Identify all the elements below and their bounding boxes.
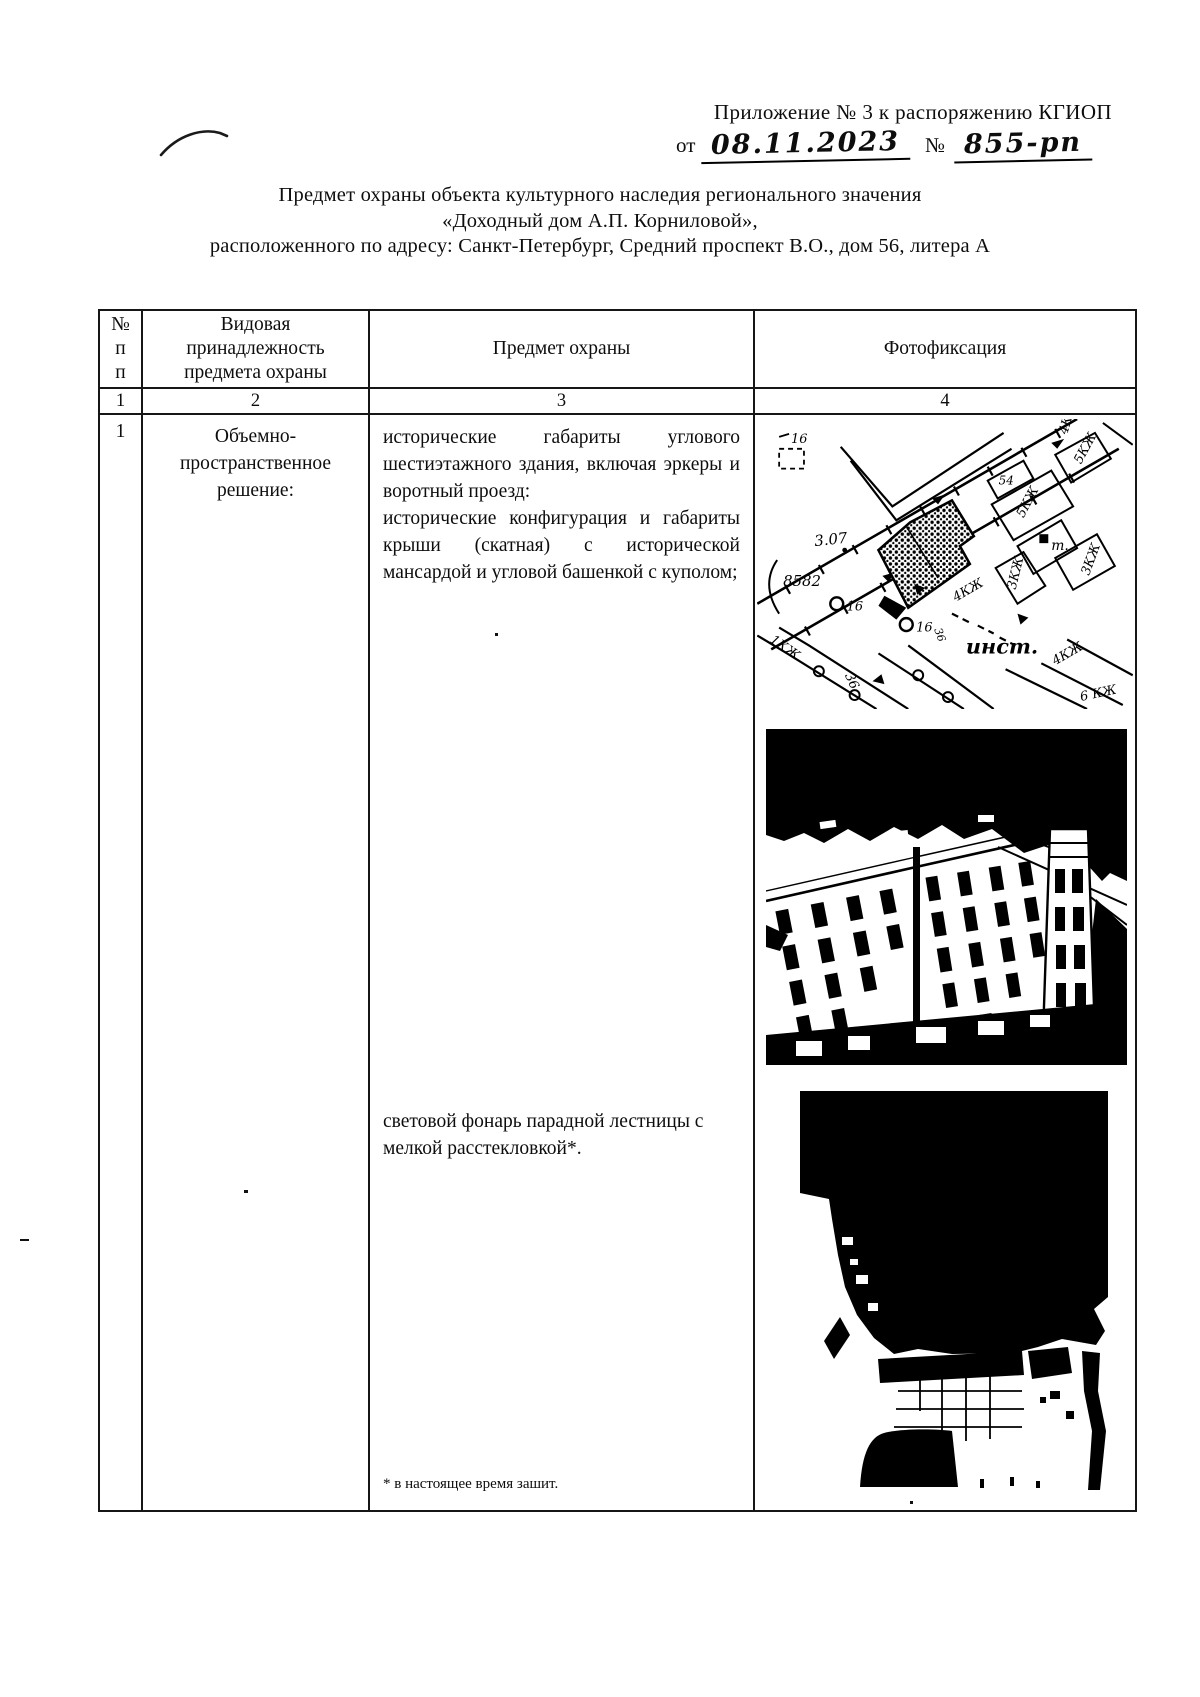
pen-mark: [158, 124, 234, 160]
row-category: Объемно-пространственное решение:: [143, 415, 370, 1510]
subject-item-1: исторические габариты углового шестиэтаж…: [383, 424, 740, 505]
skylight-photo: [800, 1091, 1108, 1490]
scan-speck: [910, 1501, 913, 1504]
number-sign: №: [925, 133, 945, 157]
header-cell-subject: Предмет охраны: [370, 311, 755, 389]
document-page: { "document": { "annex": "Приложение № 3…: [0, 0, 1200, 1697]
building-photo: [766, 729, 1127, 1065]
table-row: 1 Объемно-пространственное решение: исто…: [100, 415, 1135, 1510]
column-number-1: 1: [100, 389, 143, 415]
scan-speck: [495, 633, 498, 636]
document-title: Предмет охраны объекта культурного насле…: [0, 183, 1200, 260]
row-subject-text: исторические габариты углового шестиэтаж…: [370, 415, 755, 1510]
header-cell-category: Видовая принадлежность предмета охраны: [143, 311, 370, 389]
row-number: 1: [100, 415, 143, 1510]
svg-text:54: 54: [999, 474, 1014, 488]
site-plan-map: 16 8582 3.07 54 5КЖ 5КЖ т.: [757, 419, 1133, 709]
scan-speck: [20, 1239, 29, 1241]
row-photos: 16 8582 3.07 54 5КЖ 5КЖ т.: [755, 415, 1135, 1510]
column-number-2: 2: [143, 389, 370, 415]
title-line-1: Предмет охраны объекта культурного насле…: [0, 183, 1200, 209]
title-line-2: «Доходный дом А.П. Корниловой»,: [0, 209, 1200, 235]
title-line-3: расположенного по адресу: Санкт-Петербур…: [0, 234, 1200, 260]
column-number-3: 3: [370, 389, 755, 415]
header-cell-number: № п п: [100, 311, 143, 389]
subject-item-3: световой фонарь парадной лестницы с мелк…: [383, 1108, 740, 1162]
from-label: от: [676, 133, 695, 157]
order-date-handwritten: 08.11.2023: [700, 128, 910, 164]
order-number-handwritten: 855-рп: [954, 129, 1093, 164]
svg-text:8582: 8582: [783, 572, 821, 590]
svg-text:16: 16: [847, 600, 863, 615]
footnote: * в настоящее время зашит.: [383, 1475, 558, 1494]
column-number-4: 4: [755, 389, 1135, 415]
column-number-row: 1 2 3 4: [100, 389, 1135, 415]
svg-text:3.07: 3.07: [813, 529, 848, 550]
svg-text:16: 16: [916, 621, 932, 636]
svg-text:16: 16: [791, 432, 807, 447]
svg-text:инст.: инст.: [966, 633, 1038, 658]
scan-speck: [244, 1190, 248, 1193]
table-header-row: № п п Видовая принадлежность предмета ох…: [100, 311, 1135, 389]
annex-reference: Приложение № 3 к распоряжению КГИОП: [714, 100, 1112, 125]
protection-subject-table: № п п Видовая принадлежность предмета ох…: [98, 309, 1137, 1512]
order-date-number: от 08.11.2023 № 855-рп: [676, 130, 1116, 162]
subject-item-2: исторические конфигурация и габариты кры…: [383, 505, 740, 586]
header-cell-photo: Фотофиксация: [755, 311, 1135, 389]
